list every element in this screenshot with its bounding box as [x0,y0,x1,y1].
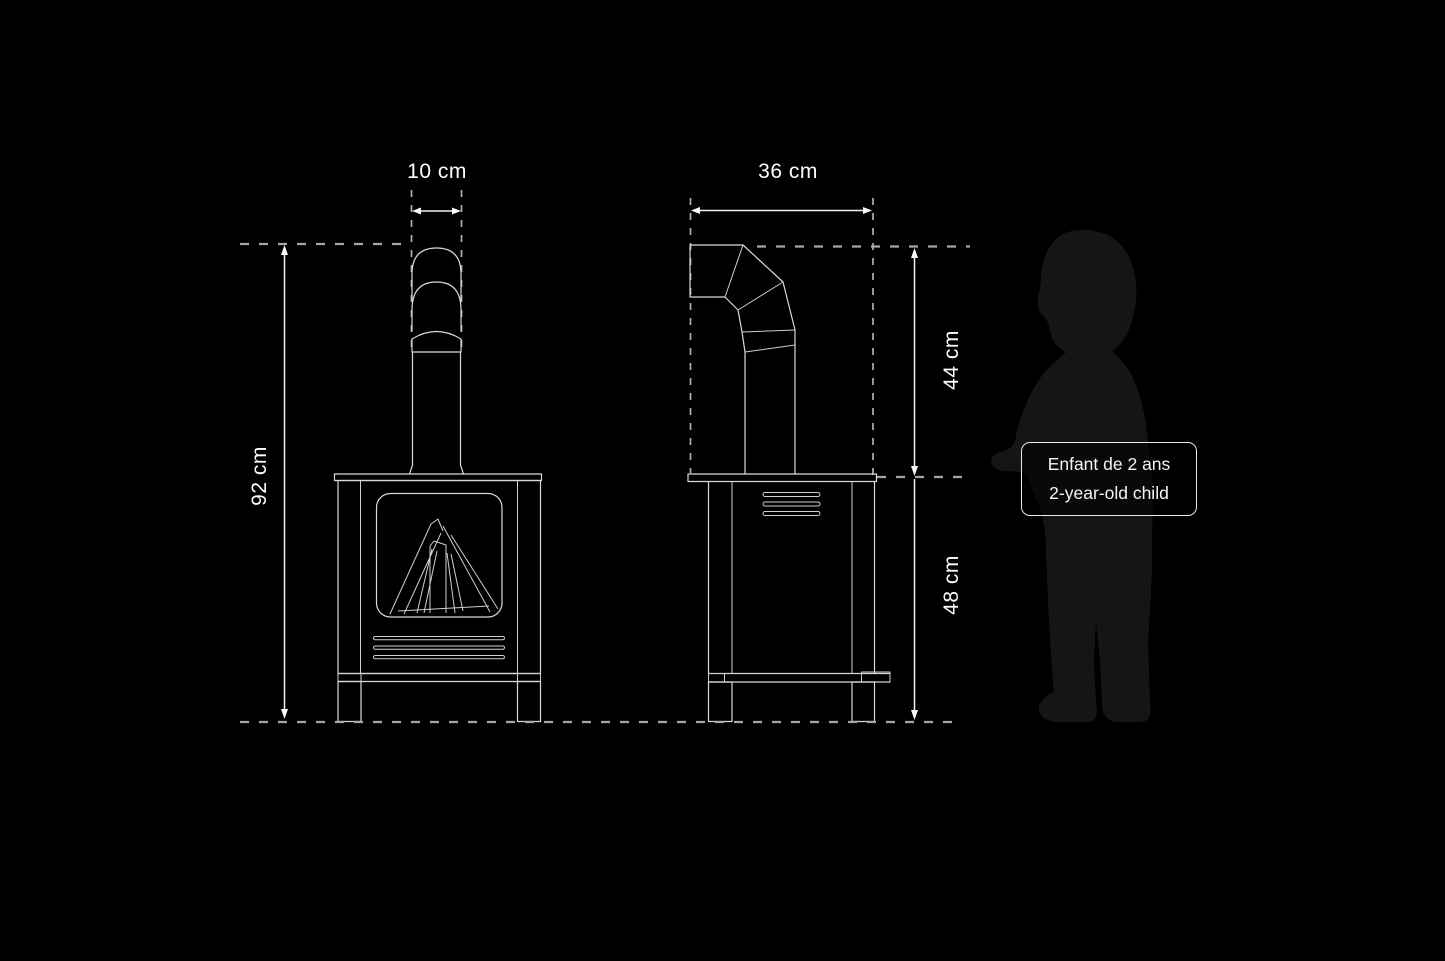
dim-92cm-arrow-down [281,709,288,719]
side-vent-slat [763,512,820,516]
chimney-cap-ring-arc [412,332,461,340]
front-body-outline [338,481,541,674]
dim-36cm-arrow-left [691,207,700,214]
scale-label-en: 2-year-old child [1049,479,1169,508]
side-vent-slat [763,502,820,506]
side-base [709,672,891,722]
front-top-plate [335,474,542,481]
front-view: 10 cm 92 cm [240,160,542,722]
front-vents [374,637,505,659]
front-shelf-bracket-right [518,674,541,682]
front-leg-right [518,682,541,722]
front-shelf-bracket-left [338,674,361,682]
diagram-canvas: 10 cm 92 cm [0,0,1445,961]
scale-label-fr: Enfant de 2 ans [1048,450,1171,479]
side-vents [763,493,820,516]
flue-vertical-pipe [745,345,795,474]
dim-10cm-label: 10 cm [407,160,467,183]
dim-92cm-label: 92 cm [248,446,271,506]
side-vent-slat [763,493,820,497]
dim-44cm-arrow-up [911,248,918,258]
scale-label: Enfant de 2 ans 2-year-old child [1021,442,1197,516]
fire-logs [390,519,498,614]
dim-36cm-label: 36 cm [758,160,818,183]
flue-horizontal-duct [690,245,743,297]
side-stove-body [688,474,890,722]
dim-44cm-label: 44 cm [940,330,963,390]
front-stove-body [335,474,542,722]
front-chimney [410,248,464,474]
side-shelf-bracket-left [709,674,725,683]
side-body-outer-lines [709,482,875,674]
dim-48cm-arrow-down [911,710,918,720]
side-view: 36 cm 44 cm 48 cm [688,160,970,722]
dim-92cm-arrow-up [281,245,288,255]
dim-48cm-label: 48 cm [940,555,963,615]
dim-10cm-arrow-right [452,208,461,215]
dim-92cm: 92 cm [248,245,288,719]
technical-drawing: 10 cm 92 cm [0,0,1445,961]
side-top-plate [688,474,877,482]
dim-36cm: 36 cm [691,160,872,214]
dim-44cm: 44 cm [911,248,963,476]
dim-44cm-arrow-down [911,466,918,476]
side-leg-front [709,682,733,722]
front-vent-slat [374,656,505,659]
chimney-cap-ring-sides [412,339,461,352]
front-vent-slat [374,646,505,649]
front-base [338,674,541,722]
side-flue [690,245,795,474]
log-right [443,526,498,612]
dim-36cm-arrow-right [863,207,872,214]
dim-48cm: 48 cm [911,479,963,720]
log-sticks [417,549,463,613]
side-body-inner-lines [732,482,852,674]
log-left [390,519,443,614]
chimney-cap-shell [412,282,461,331]
flue-elbow-edges [725,245,795,352]
dim-10cm: 10 cm [407,160,467,215]
chimney-pipe [410,352,464,474]
chimney-cap-dome [412,248,461,301]
front-leg-left [338,682,361,722]
side-leg-back [852,682,875,722]
dim-10cm-arrow-left [412,208,421,215]
front-vent-slat [374,637,505,640]
log-base [398,606,489,611]
